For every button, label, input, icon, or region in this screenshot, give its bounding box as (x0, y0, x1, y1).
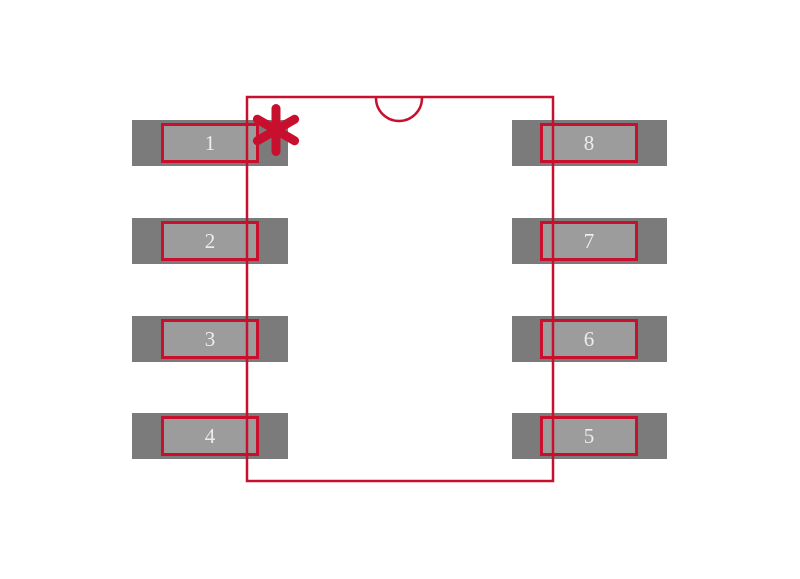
pad-pin-2-inner: 2 (161, 221, 259, 261)
pad-pin-4-inner: 4 (161, 416, 259, 456)
ic-body-outline (247, 97, 553, 481)
pad-pin-1: 1 (132, 120, 288, 166)
orientation-notch (376, 98, 422, 121)
pin-number: 4 (205, 426, 216, 447)
pin-number: 7 (584, 231, 595, 252)
pad-pin-7-inner: 7 (540, 221, 638, 261)
pad-pin-7: 7 (512, 218, 667, 264)
pin-number: 5 (584, 426, 595, 447)
pad-pin-3: 3 (132, 316, 288, 362)
pad-pin-4: 4 (132, 413, 288, 459)
pad-pin-5-inner: 5 (540, 416, 638, 456)
footprint-diagram: 1 2 3 4 8 7 6 5 (0, 0, 800, 579)
pin-number: 2 (205, 231, 216, 252)
pad-pin-6: 6 (512, 316, 667, 362)
pin-number: 1 (205, 133, 216, 154)
pin-number: 8 (584, 133, 595, 154)
pad-pin-2: 2 (132, 218, 288, 264)
pin-number: 3 (205, 329, 216, 350)
pad-pin-3-inner: 3 (161, 319, 259, 359)
pin-number: 6 (584, 329, 595, 350)
pad-pin-8: 8 (512, 120, 667, 166)
pad-pin-5: 5 (512, 413, 667, 459)
outline-overlay (0, 0, 800, 579)
pad-pin-8-inner: 8 (540, 123, 638, 163)
pad-pin-1-inner: 1 (161, 123, 259, 163)
pad-pin-6-inner: 6 (540, 319, 638, 359)
